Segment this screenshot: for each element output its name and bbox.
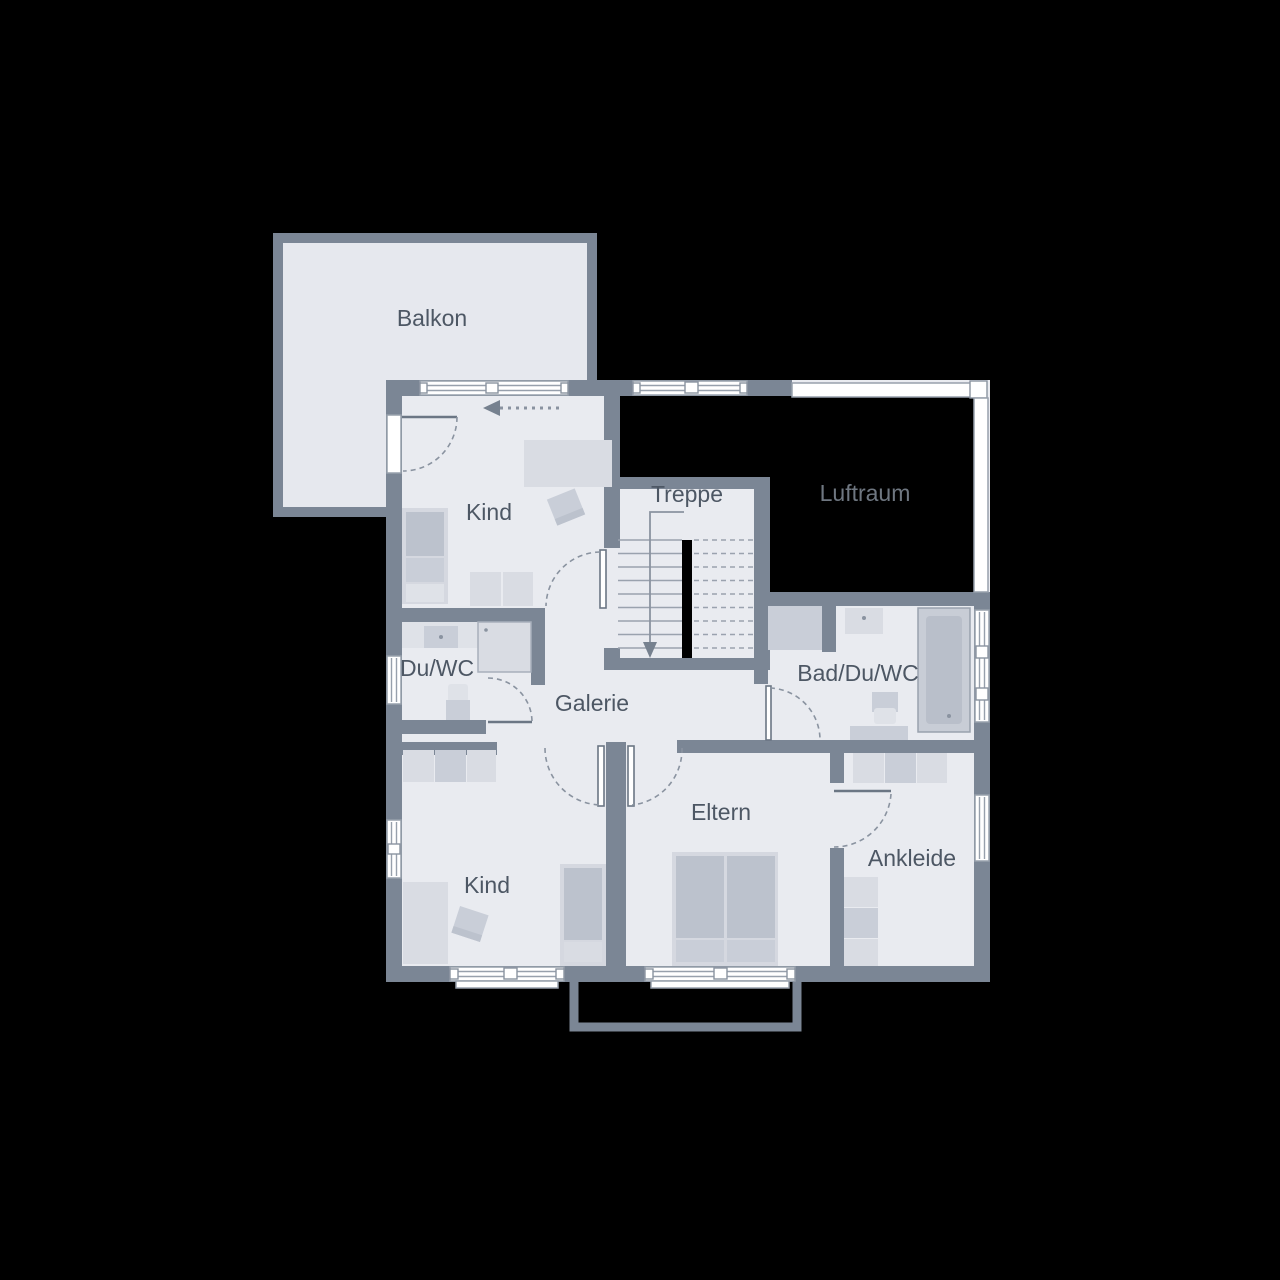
bed-kind-bottom (560, 864, 606, 966)
sink-bad (845, 608, 883, 634)
stair-handrail (682, 540, 692, 658)
label-galerie: Galerie (555, 690, 629, 716)
window-top-kind (420, 381, 568, 395)
label-luftraum: Luftraum (820, 480, 911, 506)
vanity-duwc (402, 622, 478, 648)
label-eltern: Eltern (691, 799, 751, 825)
label-bad-duwc: Bad/Du/WC (797, 660, 918, 686)
label-duwc: Du/WC (400, 655, 474, 681)
bed-eltern (672, 852, 778, 966)
floor-plan: Balkon Kind Treppe Luftraum Du/WC Galeri… (0, 0, 1280, 1280)
wardrobe-ankleide-top (853, 753, 947, 783)
bed-kind-top (402, 508, 448, 604)
wardrobe-kind-bottom (403, 750, 496, 782)
label-kind-top: Kind (466, 499, 512, 525)
label-ankleide: Ankleide (868, 845, 956, 871)
wardrobe-ankleide-left (844, 877, 878, 966)
window-kind-bottom-left (387, 820, 401, 878)
label-balkon: Balkon (397, 305, 467, 331)
window-bad (975, 610, 989, 722)
toilet-duwc (446, 684, 470, 720)
label-treppe: Treppe (651, 481, 723, 507)
railing-top (792, 381, 987, 398)
desk-kind-bottom (403, 882, 448, 964)
shower-duwc (478, 622, 531, 672)
label-kind-bottom: Kind (464, 872, 510, 898)
window-top-luftraum (633, 381, 747, 395)
shower-bad (768, 606, 822, 650)
window-kind-bottom (450, 967, 564, 988)
window-ankleide (975, 795, 989, 861)
desk-kind-top (524, 440, 612, 487)
window-duwc (387, 656, 401, 704)
window-eltern (645, 967, 795, 988)
floor-plan-page: Balkon Kind Treppe Luftraum Du/WC Galeri… (0, 0, 1280, 1280)
bathtub (918, 608, 970, 732)
railing-right (974, 398, 988, 592)
